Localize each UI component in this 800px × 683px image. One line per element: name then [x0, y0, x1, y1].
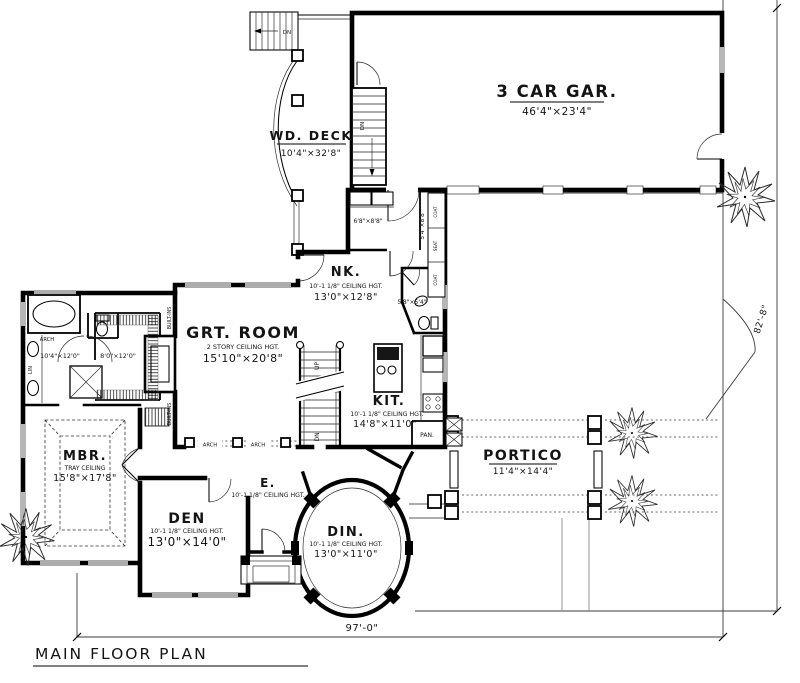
- nook-ceiling-label: 10'-1 1/8" CEILING HGT.: [309, 283, 382, 290]
- kitchen-ceiling-label: 10'-1 1/8" CEILING HGT.: [350, 411, 423, 418]
- coat-label: COAT: [433, 274, 438, 286]
- tree-icon: [608, 408, 657, 459]
- deck-name-label: WD. DECK: [269, 128, 352, 143]
- range-icon: [423, 394, 443, 412]
- great-room-name-label: GRT. ROOM: [186, 323, 300, 342]
- garage-window: [719, 47, 726, 73]
- den-size-label: 13'0"×14'0": [148, 535, 227, 549]
- nook-name-label: NK.: [331, 265, 361, 280]
- dining-bay: [241, 480, 444, 616]
- kitchen-island-icon: [374, 344, 402, 392]
- nook-size-label: 13'0"×12'8": [314, 292, 378, 303]
- garage: [352, 13, 726, 194]
- tree-icon: [0, 509, 55, 566]
- den-name-label: DEN: [168, 511, 205, 527]
- up-label: UP: [314, 362, 321, 370]
- sink-icon: [28, 381, 39, 396]
- entry-ceiling-label: 10'-1 1/8" CEILING HGT.: [231, 492, 304, 499]
- closet-rod-hatch: [148, 315, 158, 400]
- down-label: DN: [283, 30, 291, 36]
- arch-label: ARCH: [251, 443, 266, 449]
- portico-size-label: 11'4"×14'4": [493, 467, 554, 477]
- great-room-ceiling-label: 2 STORY CEILING HGT.: [207, 343, 280, 351]
- laundry-size-label: 6'8"×8'8": [353, 218, 382, 225]
- portico-pier: [450, 451, 458, 488]
- overall-depth-dim: 82'-8": [753, 304, 772, 336]
- kitchen-name-label: KIT.: [373, 394, 406, 409]
- built-ins-label: BUILT-INS: [167, 307, 173, 330]
- master-bath-size-label: 10'4"×12'0": [40, 352, 80, 360]
- coat-label: COAT: [433, 206, 438, 218]
- tree-icon: [608, 476, 657, 527]
- down-label: DN: [314, 432, 321, 441]
- garage-name-label: 3 CAR GAR.: [496, 82, 617, 101]
- oven-icon: [423, 358, 443, 372]
- builtin-cabinet: [145, 408, 169, 426]
- dining-name-label: DIN.: [327, 525, 364, 540]
- garage-stairs-icon: [352, 88, 386, 185]
- fridge-icon: [423, 336, 443, 356]
- arch-label: ARCH: [40, 337, 55, 343]
- portico: [445, 416, 720, 519]
- floor-plan-svg: 3 CAR GAR. 46'4"×23'4" WD. DECK 10'4"×32…: [0, 0, 800, 683]
- portico-pier: [594, 451, 602, 488]
- colonnade: [184, 438, 298, 448]
- wic-size-label: 8'0"×12'0": [100, 352, 136, 360]
- garage-size-label: 46'4"×23'4": [522, 106, 592, 118]
- down-label: DN: [360, 122, 366, 130]
- pantry-label: PAN.: [420, 432, 434, 439]
- dining-ceiling-label: 10'-1 1/8" CEILING HGT.: [309, 541, 382, 548]
- seat-label: SEAT: [433, 240, 438, 251]
- great-room-size-label: 15'10"×20'8": [203, 352, 283, 365]
- powder-size-label: 5'8"×5'4": [397, 299, 426, 306]
- den-ceiling-label: 10'-1 1/8" CEILING HGT.: [150, 528, 223, 535]
- linen-label: LIN: [28, 366, 34, 374]
- portico-name-label: PORTICO: [483, 448, 563, 464]
- page-title: MAIN FLOOR PLAN: [35, 645, 208, 663]
- washer-dryer-icon: [348, 192, 394, 207]
- main-stairs-icon: [296, 342, 344, 449]
- back-hall-size-label: 5'4"×8'8": [419, 210, 426, 239]
- overall-width-dim: 97'-0": [345, 623, 378, 634]
- mbr-name-label: MBR.: [63, 449, 107, 464]
- bathtub-icon: [28, 295, 80, 333]
- built-ins-label: BUILT-INS: [167, 403, 173, 426]
- tree-icon: [717, 167, 775, 227]
- mbr-ceiling-label: TRAY CEILING: [64, 465, 106, 472]
- entry-name-label: E.: [260, 476, 276, 490]
- front-stoop: [241, 556, 301, 584]
- dining-size-label: 13'0"×11'0": [314, 549, 378, 560]
- sink-icon: [28, 342, 39, 357]
- closet-rod-hatch: [97, 390, 158, 400]
- mbr-size-label: 15'8"×17'8": [53, 473, 117, 484]
- dimension-text: 97'-0" 82'-8": [345, 304, 771, 634]
- arch-label: ARCH: [203, 443, 218, 449]
- kitchen-size-label: 14'8"×11'0": [353, 419, 417, 430]
- deck-size-label: 10'4"×32'8": [281, 149, 342, 159]
- title-block: MAIN FLOOR PLAN: [33, 645, 308, 666]
- floor-plan: 3 CAR GAR. 46'4"×23'4" WD. DECK 10'4"×32…: [0, 0, 800, 683]
